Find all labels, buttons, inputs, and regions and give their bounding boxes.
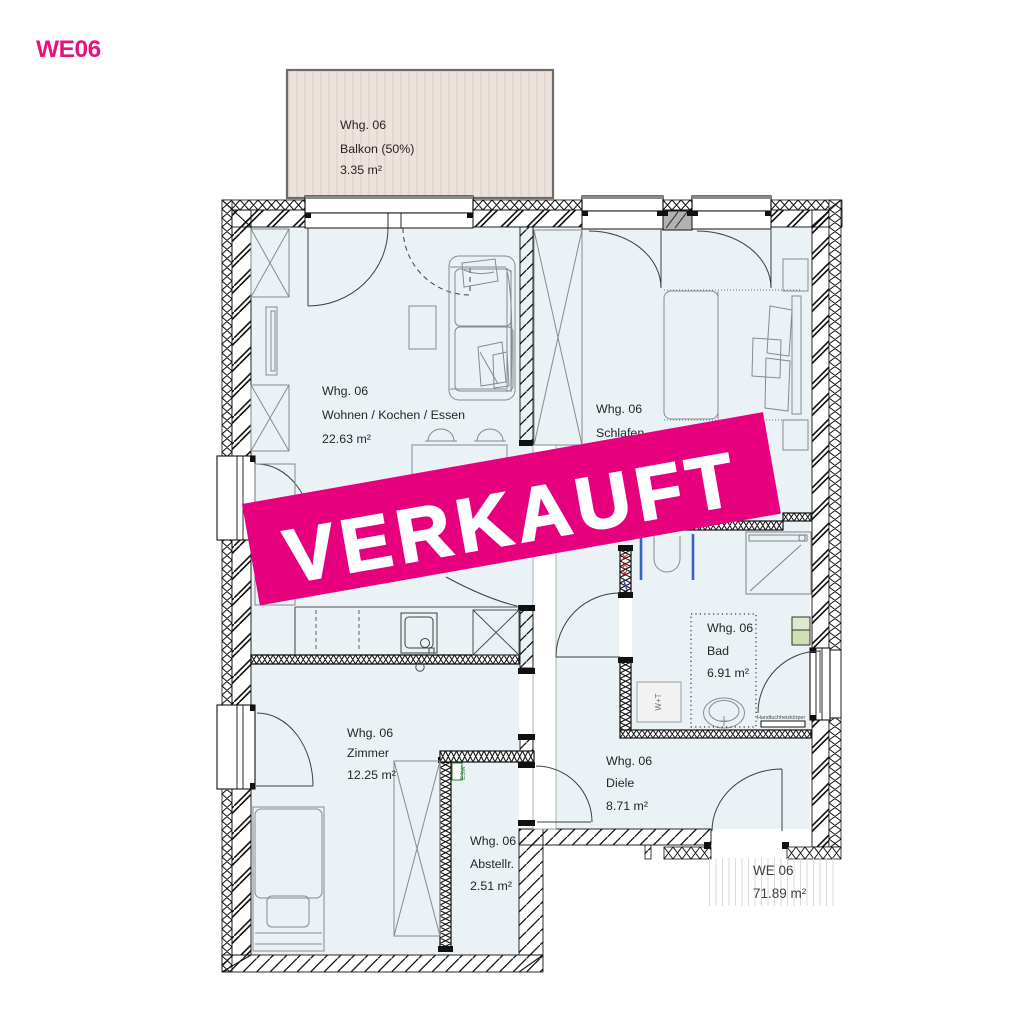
svg-text:WE 06: WE 06 (753, 863, 794, 878)
svg-text:Wohnen / Kochen / Essen: Wohnen / Kochen / Essen (322, 408, 465, 422)
svg-text:6.91 m²: 6.91 m² (707, 666, 749, 680)
svg-text:Zimmer: Zimmer (347, 746, 389, 760)
svg-text:ESW: ESW (461, 766, 467, 780)
svg-text:WE06: WE06 (36, 36, 101, 63)
svg-text:Diele: Diele (606, 776, 634, 790)
svg-text:W+T: W+T (654, 693, 663, 710)
svg-text:Whg. 06: Whg. 06 (470, 834, 516, 848)
svg-text:Whg. 06: Whg. 06 (707, 621, 753, 635)
svg-text:Whg. 06: Whg. 06 (596, 402, 642, 416)
svg-text:12.25 m²: 12.25 m² (347, 768, 396, 782)
svg-text:Balkon (50%): Balkon (50%) (340, 142, 414, 156)
svg-text:Whg. 06: Whg. 06 (347, 726, 393, 740)
svg-text:Bad: Bad (707, 644, 729, 658)
svg-text:22.63 m²: 22.63 m² (322, 432, 371, 446)
svg-text:71.89 m²: 71.89 m² (753, 886, 807, 901)
svg-text:Handtuchheizkörper: Handtuchheizkörper (757, 715, 805, 721)
svg-text:Abstellr.: Abstellr. (470, 857, 514, 871)
svg-text:8.71 m²: 8.71 m² (606, 799, 648, 813)
svg-text:Whg. 06: Whg. 06 (606, 754, 652, 768)
svg-text:2.51 m²: 2.51 m² (470, 879, 512, 893)
svg-text:Whg. 06: Whg. 06 (340, 118, 386, 132)
svg-text:3.35 m²: 3.35 m² (340, 163, 382, 177)
svg-text:Whg. 06: Whg. 06 (322, 384, 368, 398)
